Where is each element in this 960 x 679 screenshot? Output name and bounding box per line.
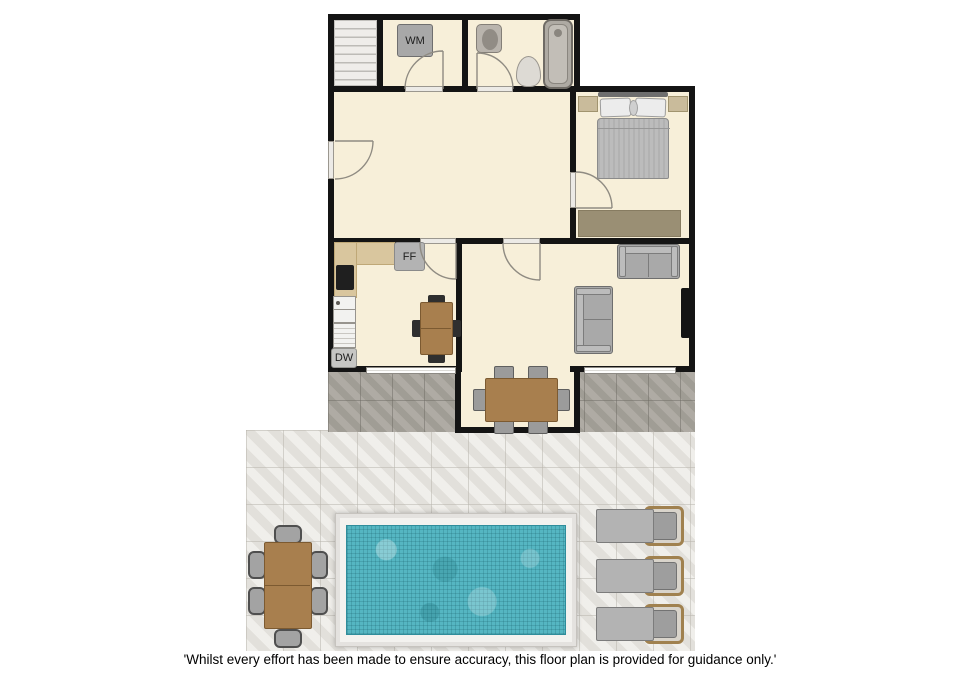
floor-plan: WM FF DW	[0, 0, 960, 679]
threshold-utility-door	[405, 86, 443, 92]
disclaimer-caption: 'Whilst every effort has been made to en…	[0, 652, 960, 667]
threshold-bedroom-door	[570, 172, 576, 208]
lounger-pad	[596, 559, 654, 593]
bed-headboard	[598, 92, 668, 97]
threshold-kitchen-door	[420, 238, 456, 244]
threshold-living-door	[503, 238, 540, 244]
dishwasher-label-box: DW	[331, 348, 357, 368]
wall-toprooms-bottom	[328, 86, 580, 92]
kitchen-table-divider	[421, 328, 451, 329]
pillow-right	[635, 97, 667, 117]
hob	[336, 265, 354, 290]
kitchen-faucet	[336, 301, 340, 305]
kitchen-sink-divider	[334, 309, 356, 310]
threshold-entrance-door	[328, 141, 334, 179]
sofa-armrest-top	[576, 288, 611, 295]
bathtub-drain	[554, 29, 562, 37]
sofa-armrest-left	[619, 246, 626, 277]
bedroom-rug	[578, 210, 681, 237]
dining-chair-bottom-2	[528, 420, 548, 434]
fridge-freezer-label: FF	[403, 251, 416, 263]
sliding-door-kitchen	[366, 367, 456, 374]
dining-chair-right	[556, 389, 570, 411]
dishwasher-unit	[333, 323, 356, 348]
wall-kitchen-living	[456, 238, 462, 372]
wall-bathroom-right	[574, 14, 580, 92]
fridge-freezer: FF	[394, 242, 425, 271]
threshold-bathroom-door	[477, 86, 513, 92]
kitchen-table	[420, 302, 453, 355]
sofa-two-seater	[617, 244, 680, 279]
sofa-three-seater	[574, 286, 613, 354]
lounger-pad	[596, 607, 654, 641]
wall-dining-left	[455, 366, 461, 433]
double-bed	[597, 92, 669, 185]
lounger-backrest	[650, 512, 677, 540]
patio-table	[264, 542, 312, 629]
pillow-left	[600, 97, 632, 117]
dining-chair-bottom-1	[494, 420, 514, 434]
sofa-backrest	[576, 288, 584, 352]
lounger-pad	[596, 509, 654, 543]
washing-machine-label: WM	[405, 35, 425, 47]
toilet	[516, 56, 541, 87]
bathroom-sink	[476, 24, 502, 53]
bed-duvet	[597, 118, 669, 179]
sun-lounger-2	[596, 556, 684, 596]
pillow-cushion	[629, 100, 638, 116]
lounger-backrest	[650, 610, 677, 638]
wall-dining-right	[574, 366, 580, 433]
wall-dining-bottom	[455, 427, 580, 433]
patio-table-divider	[265, 585, 310, 586]
sofa-cushion-divider	[648, 254, 649, 277]
wall-utility-bathroom	[462, 14, 468, 92]
sun-lounger-1	[596, 506, 684, 546]
wall-hall-bedroom	[570, 86, 576, 244]
lounger-backrest	[650, 562, 677, 590]
sofa-cushion-divider	[584, 319, 611, 320]
dining-table	[485, 378, 558, 422]
patio-chair-right-1	[310, 551, 328, 579]
sofa-backrest	[619, 246, 678, 254]
swimming-pool	[346, 525, 566, 635]
sofa-armrest-bottom	[576, 345, 611, 352]
sliding-door-living	[584, 367, 676, 374]
stairs	[334, 20, 377, 86]
tv	[681, 288, 690, 338]
washing-machine: WM	[397, 24, 433, 57]
patio-chair-bottom	[274, 629, 302, 648]
bed-fold-line	[598, 128, 670, 129]
patio-chair-right-2	[310, 587, 328, 615]
nightstand-right	[668, 96, 688, 112]
wall-stairs-utility	[377, 14, 383, 92]
bathroom-sink-basin	[482, 29, 498, 50]
bathtub	[543, 19, 573, 89]
sofa-armrest-right	[671, 246, 678, 277]
dishwasher-label: DW	[335, 352, 353, 364]
nightstand-left	[578, 96, 598, 112]
sun-lounger-3	[596, 604, 684, 644]
kitchen-sink	[333, 296, 356, 323]
